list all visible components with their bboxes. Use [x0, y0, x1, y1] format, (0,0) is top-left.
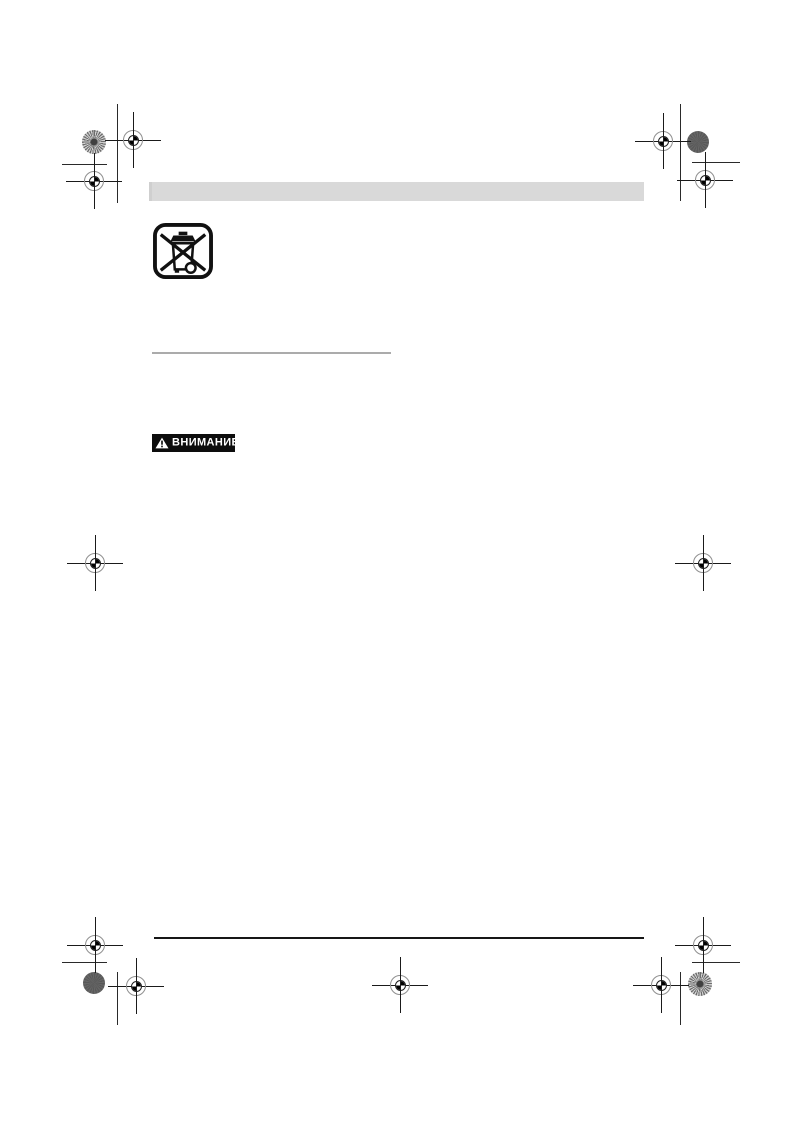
registration-mark-right-middle-icon	[675, 535, 731, 591]
ink-patch-pinwheel-bottom-right-icon	[688, 972, 712, 996]
footer-rule	[154, 937, 644, 939]
registration-mark-bottom-left-inner-icon	[108, 958, 164, 1014]
section-header-bar	[149, 182, 644, 201]
registration-mark-top-right-outer-icon	[677, 152, 733, 208]
section-divider-rule	[152, 352, 391, 354]
warning-badge: ВНИМАНИЕ	[152, 434, 235, 452]
registration-mark-bottom-center-icon	[372, 957, 428, 1013]
ink-patch-solid-bottom-left-icon	[83, 972, 105, 994]
warning-badge-label: ВНИМАНИЕ	[172, 437, 239, 448]
registration-mark-top-left-outer-icon	[66, 153, 122, 209]
warning-triangle-icon	[155, 437, 169, 449]
registration-mark-bottom-right-outer-icon	[675, 917, 731, 973]
registration-mark-left-middle-icon	[67, 535, 123, 591]
page-canvas: ВНИМАНИЕ	[0, 0, 797, 1128]
weee-crossed-bin-icon	[152, 222, 214, 280]
ink-patch-pinwheel-top-left-icon	[82, 130, 106, 154]
